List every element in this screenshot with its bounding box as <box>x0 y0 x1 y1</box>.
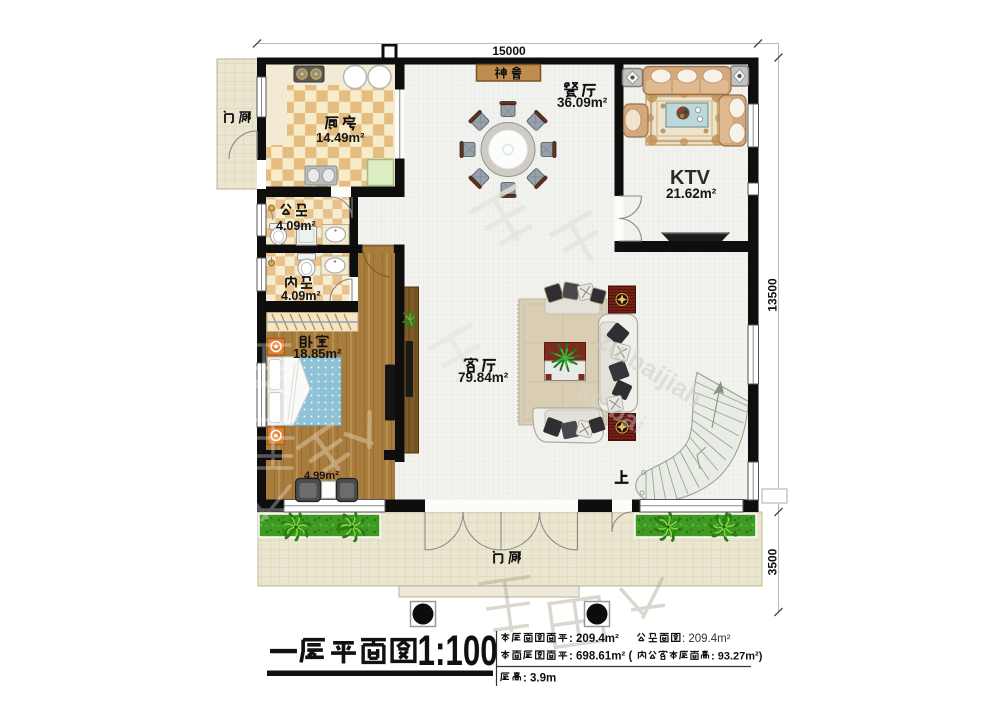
svg-text:14.49m²: 14.49m² <box>316 130 365 145</box>
svg-text:: 209.4m²: : 209.4m² <box>569 633 619 645</box>
svg-text:36.09m²: 36.09m² <box>557 95 608 110</box>
svg-text:79.84m²: 79.84m² <box>458 370 509 385</box>
svg-text:: 93.27m²): : 93.27m²) <box>711 651 763 663</box>
svg-text:4.09m²: 4.09m² <box>276 219 316 233</box>
svg-text:: 209.4m²: : 209.4m² <box>682 633 731 645</box>
svg-text:13500: 13500 <box>766 278 780 312</box>
svg-text:: 3.9m: : 3.9m <box>523 673 556 685</box>
svg-text:18.85m²: 18.85m² <box>293 346 342 361</box>
svg-text:: 698.61m² (: : 698.61m² ( <box>569 651 632 663</box>
svg-text:1:100: 1:100 <box>418 626 498 674</box>
svg-text:15000: 15000 <box>492 44 526 58</box>
svg-text:21.62m²: 21.62m² <box>666 186 717 201</box>
svg-text:4.99m²: 4.99m² <box>304 470 339 482</box>
svg-text:4.09m²: 4.09m² <box>281 289 321 303</box>
svg-text:3500: 3500 <box>766 548 780 575</box>
